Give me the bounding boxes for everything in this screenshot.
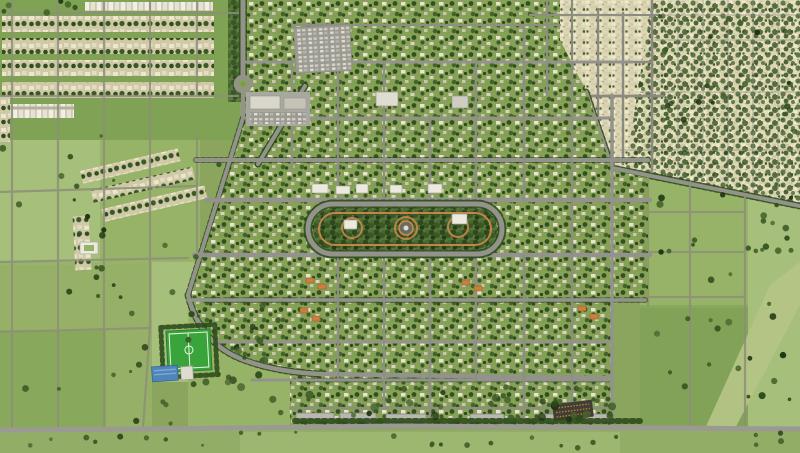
tree (667, 249, 672, 254)
tree (142, 344, 149, 351)
roundabout-island (241, 82, 246, 87)
tree (66, 289, 72, 295)
tree (431, 412, 439, 420)
tree (761, 218, 767, 224)
tree (708, 35, 712, 39)
tree (249, 324, 255, 330)
tree (720, 192, 725, 197)
tree (708, 277, 715, 284)
tree (438, 404, 443, 409)
tree (366, 411, 371, 416)
tree (111, 373, 116, 378)
tree (782, 112, 787, 117)
tree (65, 1, 72, 8)
tree (83, 435, 89, 441)
aerial-map-canvas (0, 0, 800, 453)
tree (101, 227, 106, 232)
tree (638, 82, 643, 87)
tree (767, 302, 771, 306)
tree (278, 410, 283, 415)
tree (94, 274, 100, 280)
tree (193, 254, 199, 260)
farm-building (80, 242, 98, 254)
tree (737, 20, 743, 26)
retail-building (284, 98, 306, 109)
tree (607, 412, 614, 419)
tree (705, 83, 710, 88)
tree (774, 203, 778, 207)
tree (775, 247, 782, 254)
tree (665, 103, 671, 109)
tree (759, 392, 766, 399)
tree (255, 371, 262, 378)
tree (770, 221, 775, 226)
tree (735, 365, 741, 371)
tree (136, 362, 142, 368)
tree (745, 77, 751, 83)
tree (370, 403, 379, 412)
tree (28, 443, 33, 448)
tree (242, 356, 246, 360)
tree (294, 431, 297, 434)
tree (780, 352, 786, 358)
tree (169, 289, 175, 295)
tree (201, 444, 204, 447)
tree (440, 390, 445, 395)
tree (789, 248, 794, 253)
tree (784, 103, 790, 109)
tree (112, 283, 116, 287)
tree (577, 387, 582, 392)
tree (430, 443, 434, 447)
tree (709, 318, 713, 322)
tree (566, 416, 572, 422)
tree (57, 387, 61, 391)
tree (72, 5, 77, 10)
tree (538, 413, 546, 421)
tree (784, 235, 789, 240)
tree (419, 386, 424, 391)
tree (691, 243, 695, 247)
tree (575, 445, 581, 451)
tree (351, 413, 356, 418)
tree (391, 433, 397, 439)
tree (305, 391, 313, 399)
parking-lot (294, 25, 352, 74)
tree (98, 265, 105, 272)
tree (783, 225, 790, 232)
tree (239, 431, 243, 435)
tree (724, 128, 728, 132)
tree (783, 29, 788, 34)
tree (260, 302, 266, 308)
tree (551, 400, 558, 407)
tree (658, 14, 662, 18)
tree (746, 245, 751, 250)
tree (754, 249, 759, 254)
civic-building (452, 96, 468, 108)
tree (792, 129, 798, 135)
tree (44, 9, 51, 16)
tree (724, 151, 728, 155)
tree (685, 316, 690, 321)
tree (606, 397, 611, 402)
tree (692, 237, 697, 242)
tree (758, 160, 762, 164)
tree (16, 201, 22, 207)
tree (119, 295, 123, 299)
tree (77, 233, 81, 237)
tree (197, 314, 200, 317)
tree (656, 201, 663, 208)
tree (129, 370, 132, 373)
tree (257, 432, 261, 436)
tree (133, 418, 139, 424)
clubhouse (181, 366, 194, 380)
tree (275, 317, 281, 323)
tree (754, 29, 760, 35)
tree (696, 99, 702, 105)
tree (507, 415, 514, 422)
tree (202, 379, 209, 386)
tree (614, 435, 618, 439)
tree (191, 381, 197, 387)
tree (117, 434, 123, 440)
tree (503, 384, 509, 390)
tree (99, 232, 106, 239)
tree (515, 415, 520, 420)
tree (707, 362, 711, 366)
tree (162, 243, 167, 248)
tree (668, 125, 671, 128)
tree (571, 412, 578, 419)
tree (754, 433, 758, 437)
tree (386, 398, 391, 403)
tree (185, 337, 191, 343)
tree (22, 385, 29, 392)
tree (725, 319, 732, 326)
tree (169, 421, 173, 425)
tree (711, 101, 715, 105)
tree (540, 398, 546, 404)
tree (439, 443, 443, 447)
tree (163, 402, 168, 407)
tree (681, 117, 687, 123)
tree (85, 214, 90, 219)
tree (95, 266, 99, 270)
tree (754, 443, 759, 448)
tree (218, 373, 221, 376)
tree (189, 311, 195, 317)
tree (96, 294, 100, 298)
tree (401, 386, 407, 392)
tree (261, 357, 269, 365)
tree (747, 395, 751, 399)
tree (58, 173, 64, 179)
tree (682, 150, 688, 156)
central-park (308, 204, 502, 254)
tree (583, 411, 591, 419)
tree (99, 134, 103, 138)
tree (237, 383, 245, 391)
hub-roof (404, 226, 409, 231)
tree (234, 347, 242, 355)
tree (658, 249, 663, 254)
plaza-parking (250, 112, 306, 124)
tree (530, 435, 535, 440)
tree (68, 154, 74, 160)
tree (164, 437, 168, 441)
tree (129, 311, 135, 317)
tree (770, 313, 777, 320)
pool-complex (151, 364, 193, 382)
tree (658, 195, 665, 202)
tree (93, 440, 97, 444)
tree (488, 401, 493, 406)
tree (225, 379, 231, 385)
tree (492, 394, 500, 402)
tree (715, 325, 721, 331)
tree (789, 196, 793, 200)
tree (778, 438, 784, 444)
tree (771, 378, 777, 384)
tree (774, 182, 778, 186)
tree (501, 393, 507, 399)
tree (595, 398, 600, 403)
school-building (376, 92, 398, 106)
tree (787, 81, 791, 85)
tree (654, 331, 660, 337)
aerial-map: Top-down aerial rendering of a planned g… (0, 0, 800, 453)
tree (464, 442, 470, 448)
tree (668, 370, 672, 374)
tree (682, 383, 688, 389)
tree (73, 198, 76, 201)
tree (725, 16, 730, 21)
park-pavilion (452, 214, 467, 224)
tree (6, 2, 12, 8)
tree (748, 356, 753, 361)
tree (144, 435, 149, 440)
tree (778, 431, 783, 436)
tree (760, 212, 767, 219)
tree (720, 93, 726, 99)
tree (608, 403, 616, 411)
tree (216, 162, 221, 167)
park-pavilion (344, 220, 357, 229)
tree (559, 444, 563, 448)
tree (662, 48, 668, 54)
tree (665, 116, 669, 120)
tree (729, 272, 733, 276)
retail-building (250, 96, 280, 109)
tree (763, 243, 769, 249)
tree (269, 396, 276, 403)
tree (2, 9, 7, 14)
tree (406, 399, 413, 406)
tree (788, 398, 792, 402)
tree (590, 440, 595, 445)
tree (49, 437, 53, 441)
tree (74, 184, 79, 189)
tree (489, 441, 494, 446)
tree (256, 337, 263, 344)
tree (112, 179, 115, 182)
